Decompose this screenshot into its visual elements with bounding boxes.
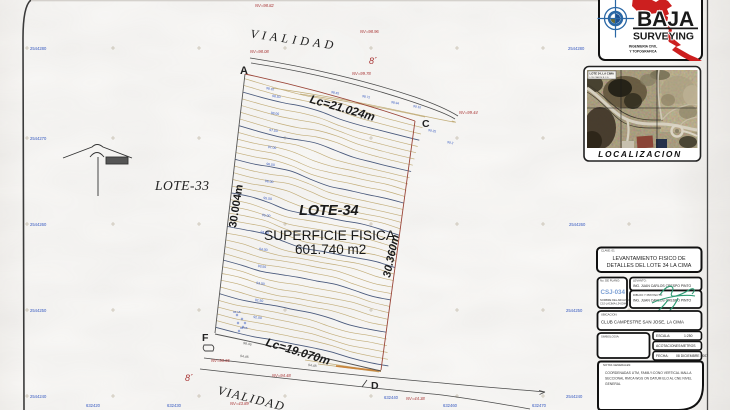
svg-text:A: A	[240, 65, 248, 77]
svg-text:2544240: 2544240	[566, 394, 583, 399]
svg-text:ACOTACIONES:: ACOTACIONES:	[656, 344, 681, 348]
svg-text:601.740 m2: 601.740 m2	[295, 242, 366, 257]
svg-text:ESCALA:: ESCALA:	[656, 334, 670, 338]
svg-text:LOTE-33: LOTE-33	[154, 178, 210, 193]
svg-text:1:250: 1:250	[684, 334, 693, 338]
svg-text:632420: 632420	[86, 403, 101, 408]
svg-text:2544250: 2544250	[30, 308, 47, 313]
svg-text:LOTE 34, LA CIMA: LOTE 34, LA CIMA	[590, 72, 614, 76]
svg-text:2544250: 2544250	[566, 308, 583, 313]
svg-text:NV=98.96: NV=98.96	[360, 29, 379, 34]
svg-text:NV=98.82: NV=98.82	[255, 3, 274, 8]
svg-text:DETALLES DEL LOTE 34 LA CIMA: DETALLES DEL LOTE 34 LA CIMA	[607, 263, 692, 269]
svg-text:D: D	[371, 380, 379, 392]
svg-text:CLUB CAMPESTRE SAN JOSE, LA CI: CLUB CAMPESTRE SAN JOSE, LA CIMA	[601, 320, 684, 325]
svg-text:LEVANTAMIENTO FISICO DE: LEVANTAMIENTO FISICO DE	[612, 256, 685, 262]
svg-text:UBICACION:: UBICACION:	[601, 313, 618, 317]
svg-text:94.15: 94.15	[233, 310, 241, 314]
svg-text:SUPERFICIE FISICA: SUPERFICIE FISICA	[264, 228, 396, 243]
svg-text:NOTAS GENERALES:: NOTAS GENERALES:	[603, 363, 631, 367]
svg-text:FECHA:: FECHA:	[656, 354, 668, 358]
svg-text:632430: 632430	[167, 403, 182, 408]
svg-text:SURVEYING: SURVEYING	[633, 32, 694, 43]
svg-text:94.05: 94.05	[240, 326, 248, 330]
svg-text:DIBUJO Y PROYECTO:: DIBUJO Y PROYECTO:	[633, 293, 663, 297]
svg-text:NV=98.08: NV=98.08	[250, 49, 269, 54]
svg-text:NV=94.48: NV=94.48	[272, 373, 291, 378]
svg-text:ING. JUAN CARLOS CRESPO PINTO: ING. JUAN CARLOS CRESPO PINTO	[633, 284, 692, 288]
svg-text:SIMBOLOGIA:: SIMBOLOGIA:	[601, 335, 620, 339]
svg-text:632470: 632470	[532, 403, 547, 408]
svg-text:GENERAL: GENERAL	[605, 382, 621, 386]
svg-text:NV=99.78: NV=99.78	[352, 71, 371, 76]
svg-text:632440: 632440	[384, 395, 399, 400]
svg-text:NOMBRE DEL ARCHIVO: NOMBRE DEL ARCHIVO	[600, 298, 629, 302]
svg-text:NV=44.38: NV=44.38	[406, 396, 425, 401]
svg-text:Y TOPOGRAFICA: Y TOPOGRAFICA	[629, 50, 657, 54]
svg-text:2544240: 2544240	[30, 394, 47, 399]
svg-text:2544280: 2544280	[568, 46, 585, 51]
svg-text:No. DE PLANO:: No. DE PLANO:	[600, 279, 620, 283]
svg-text:CSJ-034: CSJ-034	[601, 289, 626, 296]
svg-text:2544260: 2544260	[569, 222, 586, 227]
svg-text:8´: 8´	[185, 373, 193, 383]
svg-text:SECCIONAL RMCA WGS ON DATUM EL: SECCIONAL RMCA WGS ON DATUM ELO AL CNE N…	[605, 377, 692, 381]
svg-text:8´: 8´	[369, 56, 377, 66]
svg-text:08 DICIEMBRE 2007: 08 DICIEMBRE 2007	[676, 354, 708, 358]
svg-text:LOS CABOS B.C.S.: LOS CABOS B.C.S.	[590, 76, 610, 79]
svg-text:METROS: METROS	[681, 344, 696, 348]
svg-text:F: F	[202, 332, 209, 344]
svg-text:NV=99.44: NV=99.44	[459, 110, 478, 115]
svg-text:632460: 632460	[443, 403, 458, 408]
svg-text:LOCALIZACION: LOCALIZACION	[598, 149, 682, 159]
svg-text:INGENIERIA CIVIL: INGENIERIA CIVIL	[629, 45, 657, 49]
svg-text:CSJ-LACIMA-L34.DWG: CSJ-LACIMA-L34.DWG	[600, 302, 628, 306]
svg-text:LOTE-34: LOTE-34	[299, 203, 359, 219]
svg-text:CLAVE: 01: CLAVE: 01	[601, 249, 615, 253]
svg-text:COORDENADAS UTM, FAMILY:CONO V: COORDENADAS UTM, FAMILY:CONO VERTICAL MA…	[605, 371, 692, 375]
svg-text:2544270: 2544270	[30, 136, 47, 141]
svg-text:2544280: 2544280	[30, 46, 47, 51]
svg-text:NV=98.66: NV=98.66	[211, 358, 230, 363]
svg-text:2544260: 2544260	[30, 222, 47, 227]
svg-text:LEVANTO:: LEVANTO:	[633, 279, 647, 283]
